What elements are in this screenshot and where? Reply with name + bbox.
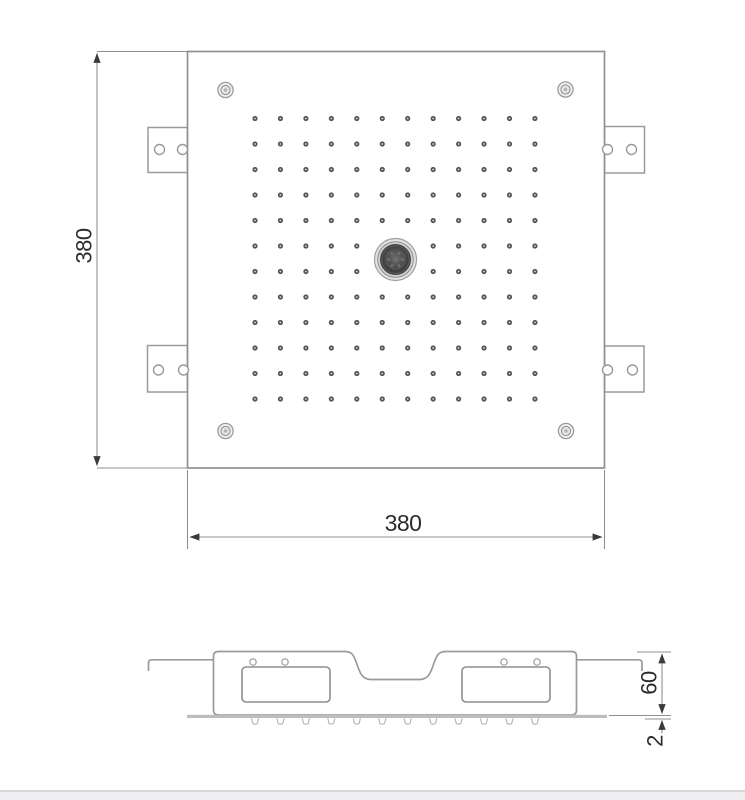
spray-nozzle-dot bbox=[431, 371, 436, 376]
spray-nozzle-dot bbox=[507, 243, 512, 248]
spray-nozzle-dot bbox=[532, 269, 537, 274]
spray-nozzle-dot bbox=[278, 141, 283, 146]
spray-nozzle-dot bbox=[507, 218, 512, 223]
spray-nozzle-dot bbox=[507, 141, 512, 146]
spray-nozzle-dot bbox=[252, 269, 257, 274]
spray-nozzle-dot bbox=[532, 294, 537, 299]
drawing-page: 380 380 60 bbox=[0, 0, 745, 800]
spray-nozzle-dot bbox=[380, 218, 385, 223]
spray-nozzle-dot bbox=[329, 167, 334, 172]
spray-nozzle-dot bbox=[252, 218, 257, 223]
spray-nozzle-dot bbox=[354, 141, 359, 146]
spray-nozzle-dot bbox=[329, 269, 334, 274]
spray-nozzle-dot bbox=[252, 294, 257, 299]
spray-nozzle-dot bbox=[303, 218, 308, 223]
spray-nozzle-dot bbox=[532, 345, 537, 350]
spray-nozzle-dot bbox=[278, 192, 283, 197]
spray-nozzle-dot bbox=[303, 243, 308, 248]
spray-nozzle-dot bbox=[329, 243, 334, 248]
spray-nozzle-dot bbox=[278, 371, 283, 376]
spray-nozzle-dot bbox=[507, 167, 512, 172]
spray-nozzle-dot bbox=[303, 141, 308, 146]
spray-nozzle-dot bbox=[329, 345, 334, 350]
side-nozzle bbox=[328, 718, 335, 724]
spray-nozzle-dot bbox=[354, 294, 359, 299]
spray-nozzle-dot bbox=[354, 345, 359, 350]
spray-nozzle-dot bbox=[431, 269, 436, 274]
spray-nozzle-dot bbox=[303, 371, 308, 376]
spray-nozzle-dot bbox=[456, 371, 461, 376]
spray-nozzle-dot bbox=[354, 243, 359, 248]
spray-nozzle-dot bbox=[405, 116, 410, 121]
spray-nozzle-dot bbox=[507, 396, 512, 401]
spray-nozzle-dot bbox=[303, 116, 308, 121]
spray-nozzle-dot bbox=[252, 371, 257, 376]
spray-nozzle-dot bbox=[252, 167, 257, 172]
spray-nozzle-dot bbox=[431, 167, 436, 172]
spray-nozzle-dot bbox=[329, 294, 334, 299]
spray-nozzle-dot bbox=[456, 192, 461, 197]
spray-nozzle-dot bbox=[431, 116, 436, 121]
spray-nozzle-dot bbox=[431, 218, 436, 223]
spray-nozzle-dot bbox=[507, 345, 512, 350]
spray-nozzle-dot bbox=[252, 345, 257, 350]
spray-plate-section bbox=[187, 715, 607, 718]
top-view: 380 380 bbox=[72, 52, 645, 550]
spray-nozzle-dot bbox=[405, 167, 410, 172]
spray-nozzle-dot bbox=[456, 243, 461, 248]
spray-nozzle-dot bbox=[532, 141, 537, 146]
spray-nozzle-dot bbox=[303, 192, 308, 197]
spray-nozzle-dot bbox=[329, 396, 334, 401]
spray-nozzle-dot bbox=[405, 371, 410, 376]
spray-nozzle-dot bbox=[405, 218, 410, 223]
spray-nozzle-dot bbox=[278, 320, 283, 325]
spray-nozzle-dot bbox=[456, 167, 461, 172]
left-bracket bbox=[149, 660, 214, 671]
spray-nozzle-dot bbox=[303, 269, 308, 274]
technical-drawing-canvas: 380 380 60 bbox=[0, 0, 745, 800]
corner-screw bbox=[558, 423, 573, 438]
spray-nozzle-dot bbox=[354, 371, 359, 376]
spray-nozzle-dot bbox=[481, 294, 486, 299]
side-view: 60 2 bbox=[149, 652, 672, 747]
spray-nozzle-dot bbox=[329, 116, 334, 121]
spray-nozzle-dot bbox=[329, 218, 334, 223]
spray-nozzle-dot bbox=[380, 294, 385, 299]
spray-nozzle-dot bbox=[380, 320, 385, 325]
spray-nozzle-dot bbox=[481, 371, 486, 376]
right-bracket bbox=[577, 660, 643, 671]
side-nozzle bbox=[531, 718, 538, 724]
spray-nozzle-dot bbox=[252, 141, 257, 146]
spray-nozzle-dot bbox=[507, 294, 512, 299]
spray-nozzle-dot bbox=[354, 396, 359, 401]
spray-nozzle-dot bbox=[380, 167, 385, 172]
spray-nozzle-dot bbox=[303, 167, 308, 172]
corner-screw bbox=[218, 423, 233, 438]
spray-nozzle-dot bbox=[431, 396, 436, 401]
dim-height bbox=[97, 52, 187, 469]
spray-nozzle-dot bbox=[354, 269, 359, 274]
dim-thickness-label: 2 bbox=[643, 735, 668, 747]
spray-nozzle-dot bbox=[380, 116, 385, 121]
spray-nozzle-dot bbox=[252, 192, 257, 197]
spray-nozzle-dot bbox=[507, 116, 512, 121]
spray-nozzle-dot bbox=[507, 371, 512, 376]
spray-nozzle-dot bbox=[405, 294, 410, 299]
spray-nozzle-dot bbox=[532, 192, 537, 197]
spray-nozzle-dot bbox=[481, 167, 486, 172]
spray-nozzle-dot bbox=[329, 141, 334, 146]
spray-nozzle-dot bbox=[405, 345, 410, 350]
spray-nozzle-dot bbox=[354, 320, 359, 325]
side-nozzle bbox=[480, 718, 487, 724]
spray-nozzle-dot bbox=[481, 243, 486, 248]
spray-nozzle-dot bbox=[456, 345, 461, 350]
spray-nozzle-dot bbox=[252, 320, 257, 325]
spray-nozzle-dot bbox=[354, 167, 359, 172]
spray-nozzle-dot bbox=[456, 320, 461, 325]
page-bottom-bar bbox=[0, 790, 745, 800]
spray-nozzle-dot bbox=[431, 294, 436, 299]
dim-depth-label: 60 bbox=[637, 671, 662, 695]
spray-nozzle-dot bbox=[278, 116, 283, 121]
side-nozzle bbox=[506, 718, 513, 724]
spray-nozzle-dot bbox=[252, 396, 257, 401]
spray-nozzle-dot bbox=[278, 243, 283, 248]
spray-nozzle-dot bbox=[303, 294, 308, 299]
dim-width-label: 380 bbox=[385, 510, 422, 536]
spray-nozzle-dot bbox=[456, 141, 461, 146]
spray-nozzle-dot bbox=[431, 141, 436, 146]
spray-nozzle-dot bbox=[456, 218, 461, 223]
spray-nozzle-dot bbox=[481, 345, 486, 350]
spray-nozzle-dot bbox=[532, 371, 537, 376]
spray-nozzle-dot bbox=[380, 192, 385, 197]
spray-nozzle-dot bbox=[380, 371, 385, 376]
spray-nozzle-dot bbox=[456, 396, 461, 401]
spray-nozzle-dot bbox=[481, 116, 486, 121]
spray-nozzle-dot bbox=[532, 116, 537, 121]
side-nozzle bbox=[379, 718, 386, 724]
side-nozzle bbox=[277, 718, 284, 724]
spray-nozzle-dot bbox=[532, 243, 537, 248]
side-nozzle bbox=[302, 718, 309, 724]
spray-nozzle-dot bbox=[278, 345, 283, 350]
spray-nozzle-dot bbox=[278, 218, 283, 223]
spray-nozzle-dot bbox=[252, 116, 257, 121]
spray-nozzle-dot bbox=[303, 396, 308, 401]
spray-nozzle-dot bbox=[329, 320, 334, 325]
spray-nozzle-dot bbox=[380, 345, 385, 350]
spray-nozzle-dot bbox=[431, 192, 436, 197]
side-nozzle bbox=[251, 718, 258, 724]
spray-nozzle-dot bbox=[329, 371, 334, 376]
spray-nozzle-dot bbox=[507, 192, 512, 197]
side-nozzle bbox=[430, 718, 437, 724]
spray-nozzle-dot bbox=[481, 218, 486, 223]
spray-nozzle-dot bbox=[278, 294, 283, 299]
side-nozzle bbox=[455, 718, 462, 724]
water-chamber-right bbox=[462, 667, 550, 702]
spray-nozzle-dot bbox=[278, 396, 283, 401]
spray-nozzle-dot bbox=[278, 167, 283, 172]
spray-nozzle-dot bbox=[456, 269, 461, 274]
spray-nozzle-dot bbox=[405, 141, 410, 146]
spray-nozzle-dot bbox=[252, 243, 257, 248]
spray-nozzle-dot bbox=[532, 167, 537, 172]
spray-nozzle-dot bbox=[354, 116, 359, 121]
water-chamber-left bbox=[242, 667, 330, 702]
spray-nozzle-dot bbox=[481, 192, 486, 197]
spray-nozzle-dot bbox=[354, 218, 359, 223]
spray-nozzle-dot bbox=[507, 320, 512, 325]
spray-nozzle-dot bbox=[405, 396, 410, 401]
spray-nozzle-dot bbox=[481, 320, 486, 325]
spray-nozzle-dot bbox=[532, 396, 537, 401]
spray-nozzle-dot bbox=[532, 218, 537, 223]
spray-nozzle-dot bbox=[481, 396, 486, 401]
spray-nozzle-dot bbox=[380, 141, 385, 146]
side-nozzle-row bbox=[251, 718, 538, 724]
side-nozzle bbox=[404, 718, 411, 724]
spray-nozzle-dot bbox=[405, 320, 410, 325]
spray-nozzle-dot bbox=[303, 320, 308, 325]
spray-nozzle-dot bbox=[456, 116, 461, 121]
spray-nozzle-dot bbox=[507, 269, 512, 274]
spray-nozzle-dot bbox=[431, 243, 436, 248]
corner-screw bbox=[558, 82, 573, 97]
spray-nozzle-dot bbox=[431, 320, 436, 325]
spray-nozzle-dot bbox=[303, 345, 308, 350]
spray-nozzle-dot bbox=[456, 294, 461, 299]
dim-thickness bbox=[645, 719, 671, 734]
spray-nozzle-dot bbox=[532, 320, 537, 325]
spray-nozzle-dot bbox=[405, 192, 410, 197]
side-nozzle bbox=[353, 718, 360, 724]
corner-screw bbox=[218, 82, 233, 97]
spray-nozzle-dot bbox=[431, 345, 436, 350]
dim-height-label: 380 bbox=[72, 228, 97, 263]
spray-nozzle-dot bbox=[481, 141, 486, 146]
center-led-unit bbox=[375, 239, 417, 281]
spray-nozzle-dot bbox=[354, 192, 359, 197]
spray-nozzle-dot bbox=[481, 269, 486, 274]
spray-nozzle-dot bbox=[380, 396, 385, 401]
spray-nozzle-dot bbox=[278, 269, 283, 274]
spray-nozzle-dot bbox=[329, 192, 334, 197]
